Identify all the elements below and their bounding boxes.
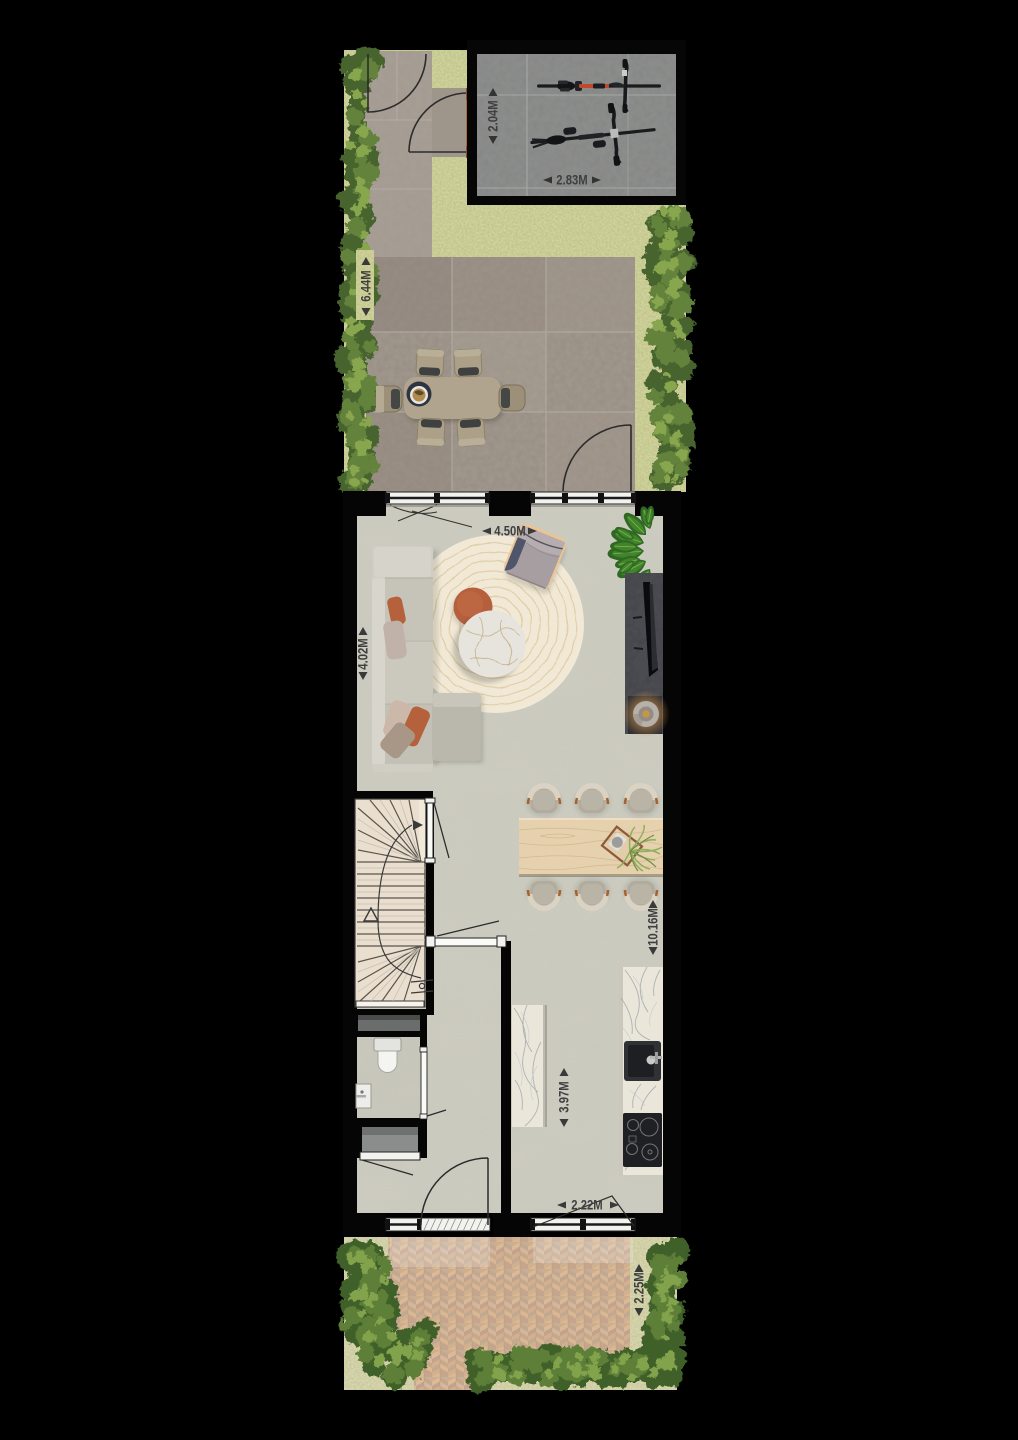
svg-text:2.22M: 2.22M xyxy=(571,1198,602,1213)
svg-text:6.44M: 6.44M xyxy=(359,270,374,301)
svg-text:4.50M: 4.50M xyxy=(494,524,525,539)
svg-text:4.02M: 4.02M xyxy=(356,638,371,669)
svg-text:2.83M: 2.83M xyxy=(556,173,587,188)
svg-text:10.16M: 10.16M xyxy=(646,908,661,946)
svg-text:2.25M: 2.25M xyxy=(632,1272,647,1303)
svg-text:3.97M: 3.97M xyxy=(557,1081,572,1112)
svg-text:2.04M: 2.04M xyxy=(486,100,501,131)
